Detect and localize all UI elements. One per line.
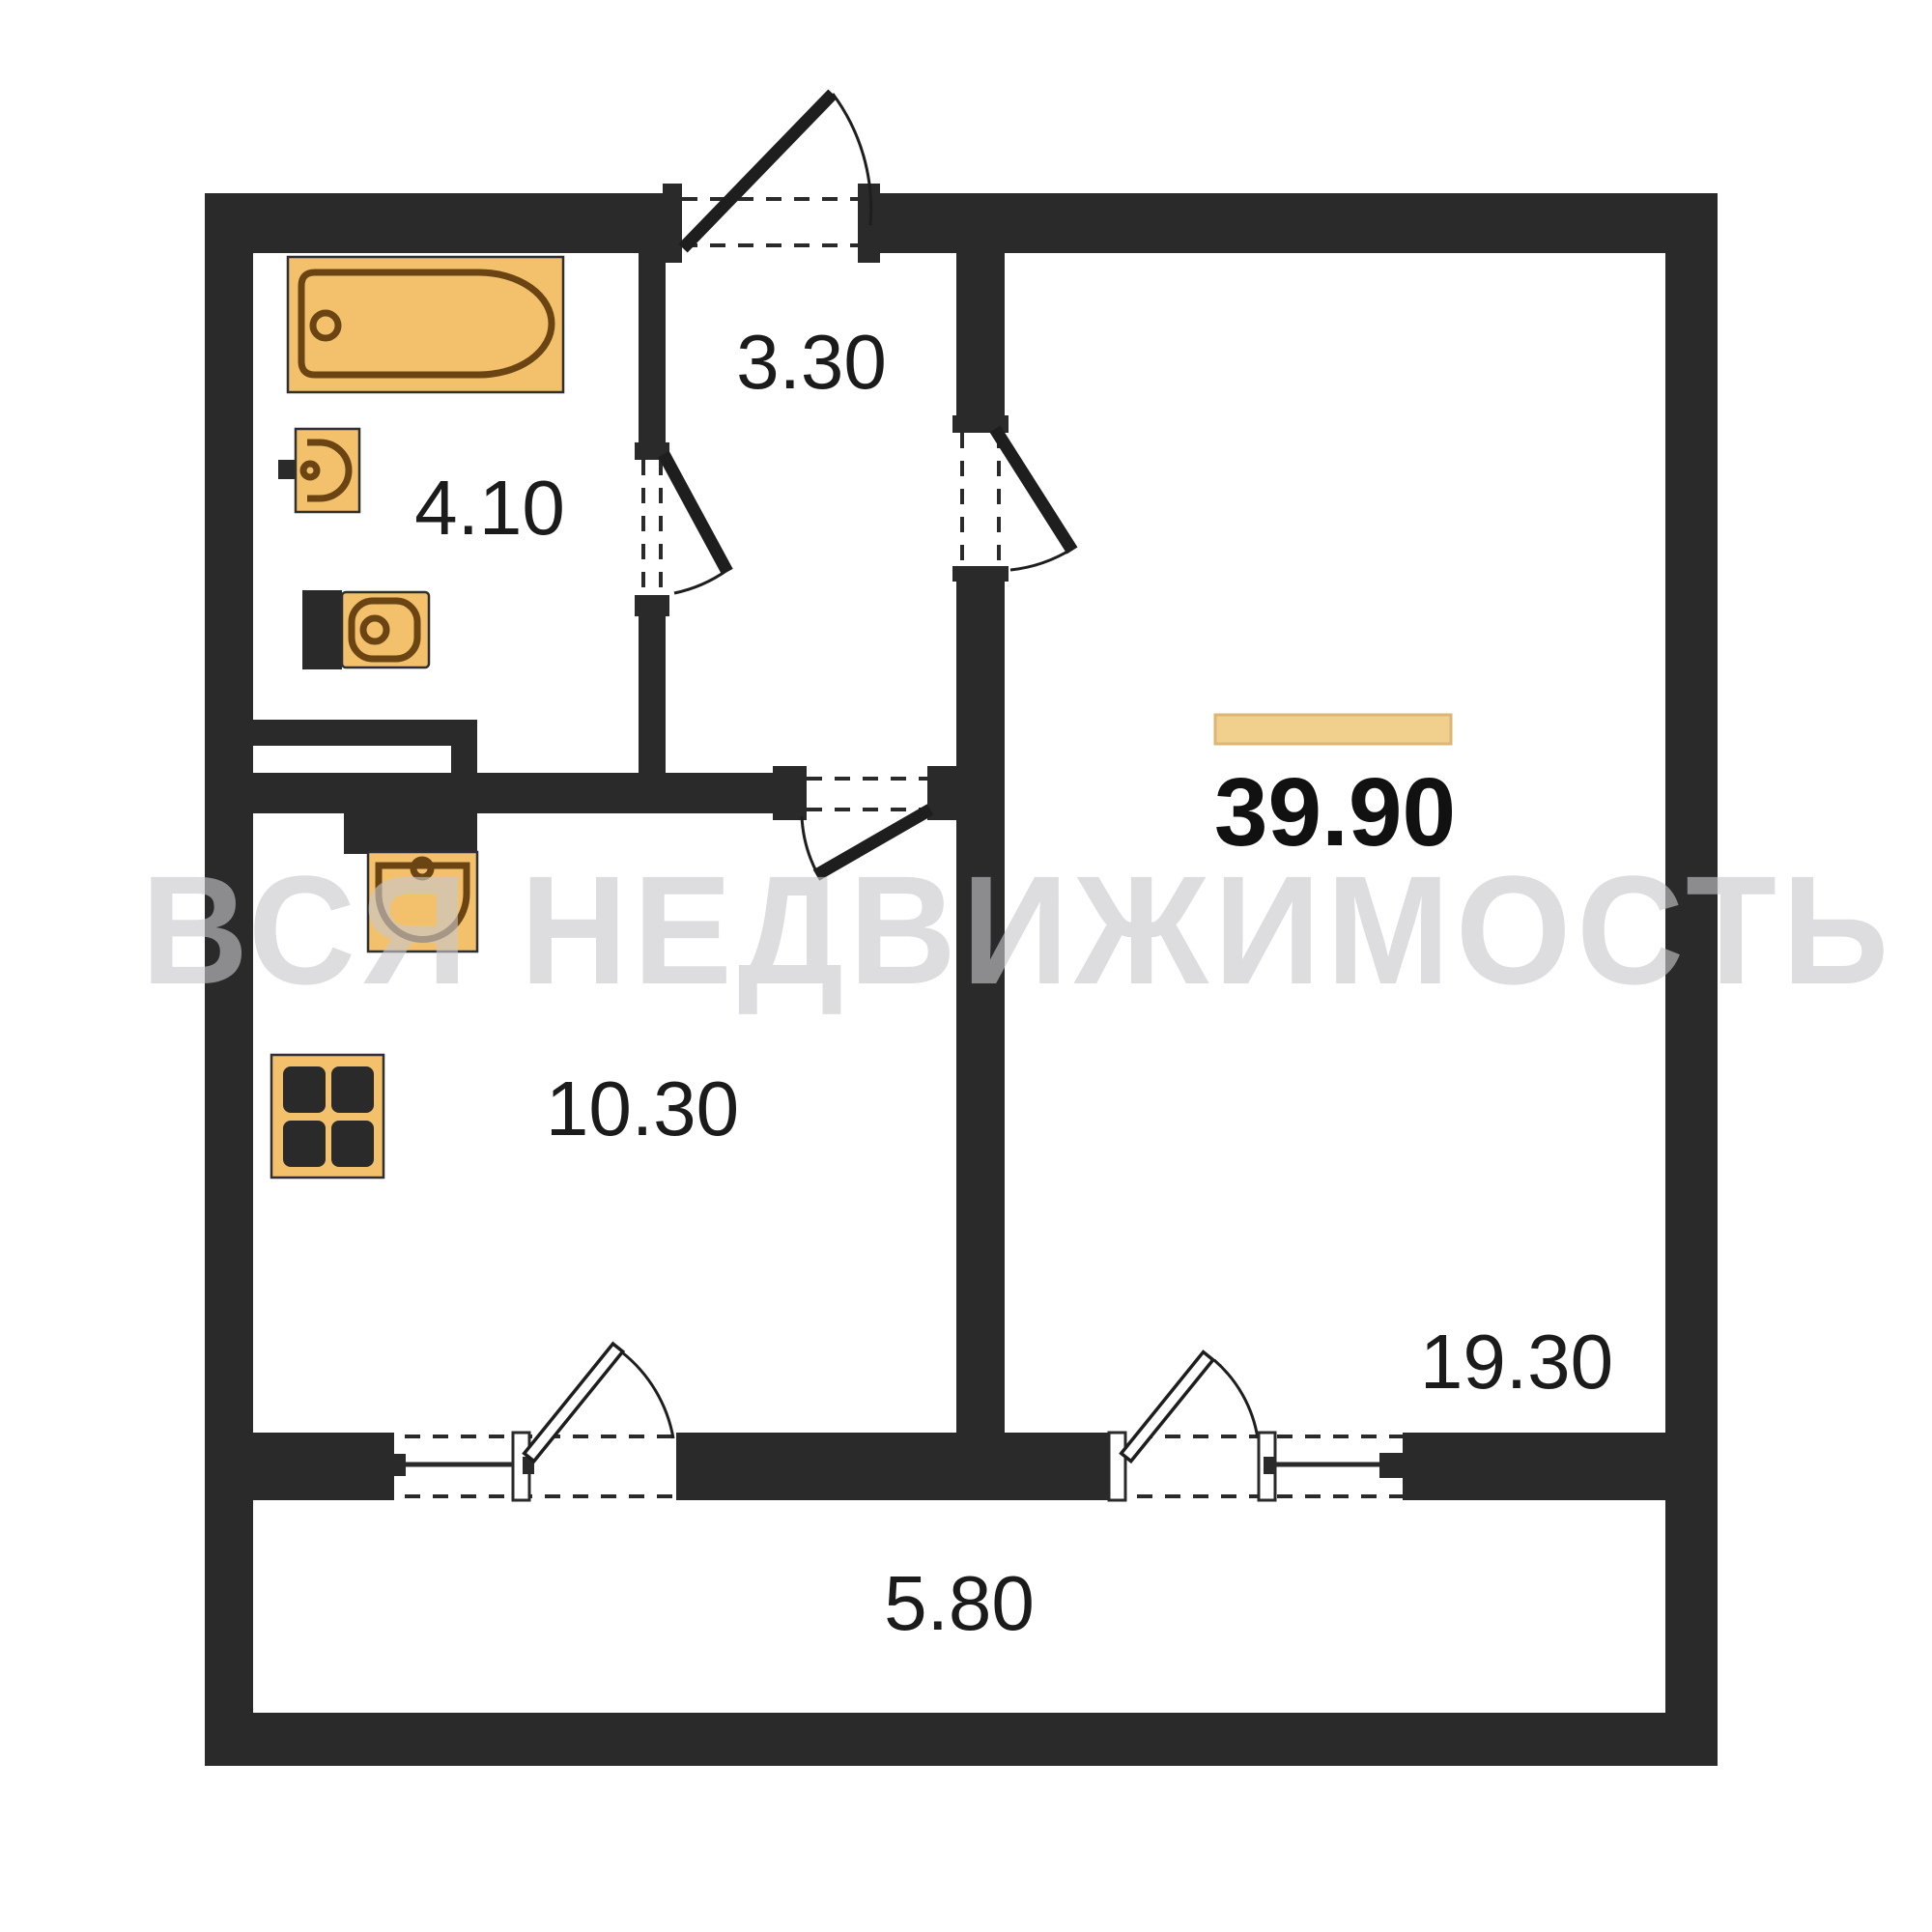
stove-burner-bottom-left bbox=[283, 1121, 326, 1167]
toilet-tank bbox=[302, 590, 342, 669]
living-balcony-door-leaf bbox=[1122, 1352, 1213, 1462]
bathroom-right-wall-lower bbox=[639, 616, 666, 777]
living-window-left-tick bbox=[1264, 1457, 1275, 1474]
bathtub bbox=[288, 257, 563, 392]
bathroom-door-bottom-jamb bbox=[635, 595, 669, 616]
kitchen-window-left-block bbox=[386, 1454, 406, 1476]
bathroom-door-leaf bbox=[664, 454, 727, 572]
bathroom-bottom-thin-wall bbox=[253, 720, 477, 746]
floorplan-image: 39.90 3.30 4.10 10.30 19.30 5.80 ВСЯ НЕД… bbox=[0, 0, 1932, 1932]
living-door-leaf bbox=[995, 429, 1072, 551]
entrance-door-leaf bbox=[683, 94, 833, 248]
living-window-right-block bbox=[1379, 1453, 1403, 1478]
living-door-bottom-jamb bbox=[952, 566, 1009, 582]
kitchen-door-left-jamb bbox=[773, 766, 807, 820]
kitchen-balcony-door-swing-arc bbox=[622, 1352, 673, 1438]
stove-burner-bottom-right bbox=[331, 1121, 374, 1167]
kitchen-door-right-jamb bbox=[927, 766, 956, 820]
kitchen-balcony-door-leaf bbox=[525, 1344, 623, 1462]
floorplan-drawing: 39.90 3.30 4.10 10.30 19.30 5.80 ВСЯ НЕД… bbox=[0, 0, 1932, 1932]
bottom-outer-wall bbox=[205, 1713, 1718, 1766]
stove-burner-top-left bbox=[283, 1066, 326, 1113]
balcony-wall-right-segment bbox=[1403, 1433, 1665, 1500]
room-label-bathroom: 4.10 bbox=[414, 465, 565, 551]
entrance-door-left-jamb bbox=[663, 184, 682, 263]
room-label-kitchen: 10.30 bbox=[546, 1065, 739, 1151]
kitchen-top-wall bbox=[253, 773, 773, 813]
room-label-hallway: 3.30 bbox=[736, 319, 887, 405]
stove-burner-top-right bbox=[331, 1066, 374, 1113]
balcony-wall-left-segment bbox=[253, 1433, 394, 1500]
room-label-balcony: 5.80 bbox=[884, 1560, 1035, 1646]
hall-living-wall-upper bbox=[956, 253, 1005, 415]
bathroom-door-swing-arc bbox=[674, 570, 727, 593]
stove bbox=[271, 1055, 384, 1178]
top-wall-left-segment bbox=[205, 193, 682, 253]
living-balcony-door-swing-arc bbox=[1214, 1360, 1258, 1438]
top-wall-right-segment bbox=[880, 193, 1718, 253]
watermark-text: ВСЯ НЕДВИЖИМОСТЬ bbox=[141, 843, 1894, 1016]
living-balcony-door-left-jamb bbox=[1109, 1433, 1125, 1500]
washbasin bbox=[278, 429, 359, 512]
entrance-door-right-jamb bbox=[858, 184, 880, 263]
toilet bbox=[302, 590, 429, 669]
balcony-wall-middle-segment bbox=[676, 1433, 1109, 1500]
room-label-living-room: 19.30 bbox=[1420, 1319, 1613, 1405]
total-area-highlight-bar bbox=[1215, 715, 1451, 744]
living-door-swing-arc bbox=[1010, 549, 1072, 570]
bathroom-right-wall-upper bbox=[639, 253, 666, 442]
